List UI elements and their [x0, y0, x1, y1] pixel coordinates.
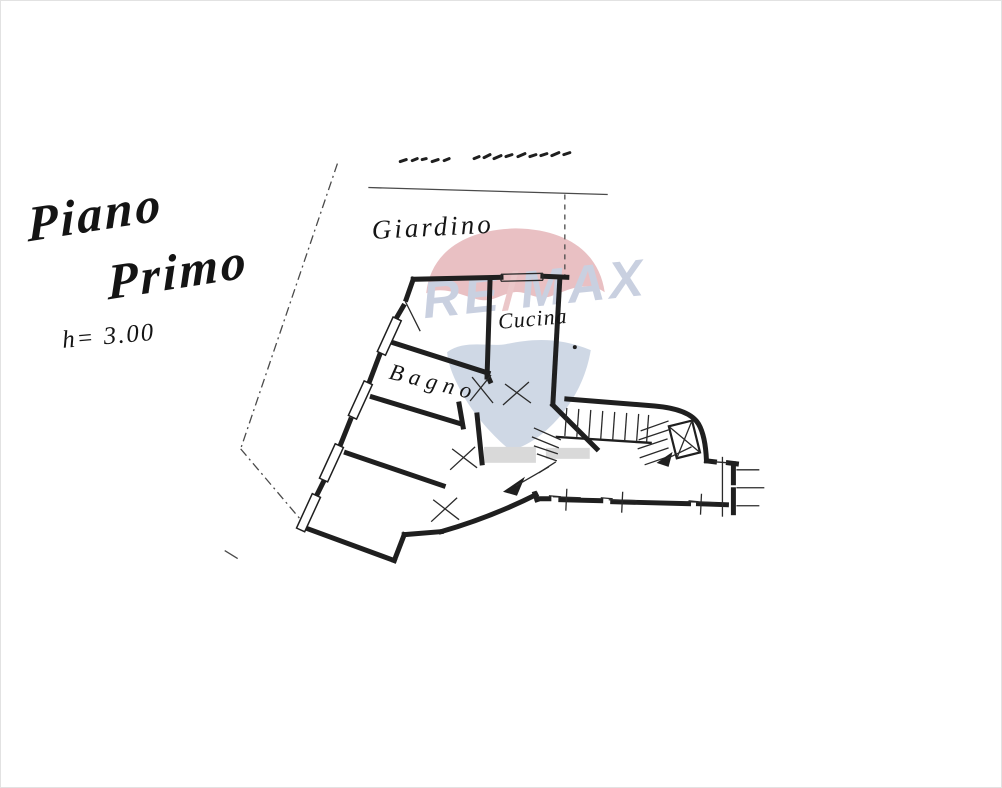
- dimension-ticks: [539, 345, 764, 517]
- entrance-arrow: [503, 467, 549, 496]
- corridor-wall: [537, 462, 729, 505]
- garden-label: Giardino: [371, 209, 494, 246]
- plan-drawing: [1, 1, 1001, 787]
- stair-treads: [532, 408, 671, 465]
- floorplan-scan: RE/MAX: [0, 0, 1002, 788]
- window-top-wall: [501, 273, 543, 281]
- ink-dot: [573, 345, 577, 349]
- cropped-street-text-fragment: [400, 153, 570, 162]
- elevator-shaft: [669, 421, 700, 459]
